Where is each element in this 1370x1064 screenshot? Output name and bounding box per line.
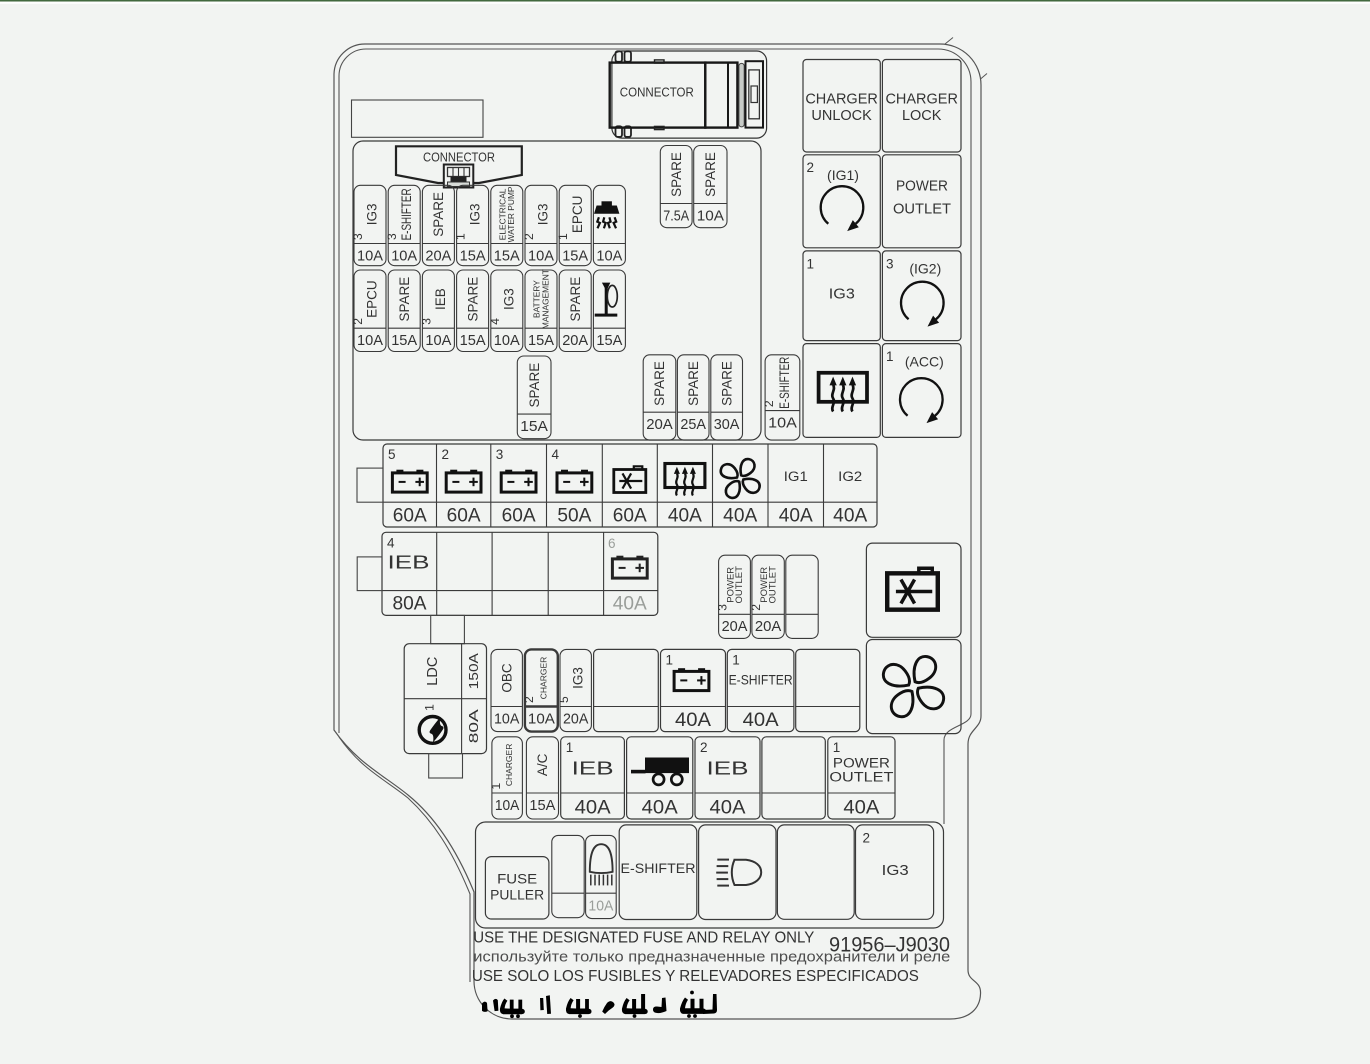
svg-text:UNLOCK: UNLOCK — [811, 108, 872, 124]
svg-text:10A: 10A — [528, 247, 554, 264]
svg-text:30A: 30A — [714, 416, 740, 433]
svg-text:E-SHIFTER: E-SHIFTER — [621, 860, 696, 876]
svg-text:40A: 40A — [710, 798, 746, 819]
svg-text:4: 4 — [387, 536, 395, 551]
svg-text:10A: 10A — [588, 898, 613, 915]
svg-text:10A: 10A — [357, 247, 383, 264]
svg-text:SPARE: SPARE — [652, 361, 667, 406]
svg-text:SPARE: SPARE — [669, 152, 684, 197]
svg-text:CHARGER: CHARGER — [885, 92, 958, 108]
svg-text:CHARGER: CHARGER — [538, 657, 548, 700]
svg-text:OBC: OBC — [499, 663, 514, 693]
svg-text:1: 1 — [556, 233, 570, 240]
svg-text:10A: 10A — [494, 710, 519, 727]
svg-text:40A: 40A — [668, 506, 702, 527]
svg-text:20A: 20A — [646, 416, 673, 433]
svg-text:POWER: POWER — [833, 756, 890, 771]
svg-text:3: 3 — [351, 233, 365, 240]
svg-text:20A: 20A — [755, 618, 781, 635]
svg-text:40A: 40A — [675, 710, 711, 731]
svg-text:6: 6 — [608, 536, 616, 551]
svg-text:10A: 10A — [697, 207, 724, 224]
svg-text:40A: 40A — [843, 798, 879, 819]
svg-text:IG3: IG3 — [365, 204, 380, 226]
svg-text:IG3: IG3 — [570, 667, 585, 689]
svg-text:1: 1 — [833, 740, 841, 755]
svg-text:15A: 15A — [391, 332, 417, 349]
svg-text:80A: 80A — [393, 594, 427, 615]
svg-text:SPARE: SPARE — [703, 152, 718, 197]
svg-text:используйте только предназначе: используйте только предназначенные предо… — [473, 949, 950, 966]
svg-text:2: 2 — [749, 604, 763, 611]
svg-text:15A: 15A — [460, 332, 486, 349]
svg-text:IEB: IEB — [707, 759, 749, 779]
svg-text:MANAGEMENT: MANAGEMENT — [540, 269, 550, 329]
svg-text:20A: 20A — [722, 618, 748, 635]
svg-text:2: 2 — [700, 740, 708, 755]
svg-text:FUSE: FUSE — [497, 872, 537, 887]
svg-text:3: 3 — [385, 233, 399, 240]
svg-text:2: 2 — [762, 400, 776, 407]
svg-text:IG3: IG3 — [829, 286, 855, 303]
svg-text:OUTLET: OUTLET — [829, 770, 893, 785]
svg-text:2: 2 — [522, 696, 536, 703]
svg-text:SPARE: SPARE — [686, 361, 701, 406]
svg-text:2: 2 — [522, 233, 536, 240]
svg-text:2: 2 — [351, 318, 365, 325]
svg-text:60A: 60A — [613, 506, 647, 527]
svg-text:10A: 10A — [495, 797, 520, 814]
svg-text:CHARGER: CHARGER — [504, 744, 514, 787]
svg-text:1: 1 — [886, 349, 894, 364]
svg-text:SPARE: SPARE — [568, 277, 583, 322]
svg-text:A/C: A/C — [535, 753, 550, 776]
svg-text:3: 3 — [886, 257, 894, 272]
svg-text:1: 1 — [423, 704, 437, 711]
svg-text:2: 2 — [442, 447, 450, 462]
svg-text:IG3: IG3 — [502, 288, 517, 310]
svg-text:SPARE: SPARE — [397, 277, 412, 322]
svg-text:SPARE: SPARE — [527, 363, 542, 408]
svg-text:10A: 10A — [596, 247, 622, 264]
svg-text:20A: 20A — [425, 247, 451, 264]
svg-text:WATER PUMP: WATER PUMP — [506, 186, 516, 242]
svg-text:15A: 15A — [528, 332, 554, 349]
svg-text:15A: 15A — [562, 247, 588, 264]
svg-text:IG3: IG3 — [882, 862, 909, 879]
svg-text:3: 3 — [496, 447, 504, 462]
svg-text:7.5A: 7.5A — [663, 207, 689, 224]
svg-text:50A: 50A — [557, 506, 591, 527]
svg-text:40A: 40A — [723, 506, 757, 527]
svg-text:60A: 60A — [393, 506, 427, 527]
svg-text:PULLER: PULLER — [490, 888, 544, 903]
svg-text:60A: 60A — [447, 506, 481, 527]
svg-text:1: 1 — [454, 233, 468, 240]
svg-text:15A: 15A — [529, 797, 555, 814]
svg-text:40A: 40A — [575, 798, 611, 819]
svg-text:SPARE: SPARE — [465, 277, 480, 322]
svg-text:15A: 15A — [520, 418, 548, 435]
svg-text:LDC: LDC — [425, 657, 441, 686]
svg-text:2: 2 — [863, 831, 871, 846]
svg-text:E-SHIFTER: E-SHIFTER — [777, 357, 792, 409]
svg-text:1: 1 — [489, 783, 503, 790]
svg-text:15A: 15A — [460, 247, 486, 264]
svg-text:15A: 15A — [596, 332, 622, 349]
svg-text:60A: 60A — [502, 506, 536, 527]
svg-text:3: 3 — [419, 318, 433, 325]
svg-text:20A: 20A — [562, 332, 588, 349]
svg-text:E-SHIFTER: E-SHIFTER — [729, 673, 793, 688]
svg-text:3: 3 — [716, 604, 730, 611]
svg-text:1: 1 — [807, 257, 815, 272]
svg-text:IEB: IEB — [388, 553, 430, 573]
svg-text:10A: 10A — [528, 710, 555, 727]
svg-text:10A: 10A — [494, 332, 520, 349]
svg-text:10A: 10A — [357, 332, 383, 349]
svg-text:2: 2 — [807, 160, 815, 175]
svg-text:CONNECTOR: CONNECTOR — [423, 150, 495, 164]
svg-text:USE SOLO LOS FUSIBLES Y RELEVA: USE SOLO LOS FUSIBLES Y RELEVADORES ESPE… — [472, 968, 919, 985]
svg-text:20A: 20A — [563, 710, 588, 727]
svg-text:EPCU: EPCU — [365, 280, 380, 318]
svg-text:25A: 25A — [680, 416, 706, 433]
svg-text:(IG2): (IG2) — [909, 261, 941, 277]
svg-text:IG2: IG2 — [838, 469, 862, 484]
svg-text:80A: 80A — [466, 709, 481, 743]
svg-text:(ACC): (ACC) — [905, 354, 944, 370]
svg-text:5: 5 — [388, 447, 396, 462]
svg-text:CHARGER: CHARGER — [805, 92, 878, 108]
svg-text:E-SHIFTER: E-SHIFTER — [399, 188, 414, 240]
svg-text:EPCU: EPCU — [570, 196, 585, 234]
svg-text:1: 1 — [732, 653, 740, 668]
svg-text:40A: 40A — [743, 710, 779, 731]
svg-text:OUTLET: OUTLET — [734, 566, 745, 604]
svg-text:1: 1 — [566, 740, 574, 755]
svg-text:40A: 40A — [833, 506, 867, 527]
svg-text:150A: 150A — [466, 653, 481, 689]
svg-text:10A: 10A — [768, 414, 797, 431]
svg-text:10A: 10A — [391, 247, 417, 264]
svg-text:4: 4 — [488, 318, 502, 325]
svg-text:40A: 40A — [779, 506, 813, 527]
svg-text:SPARE: SPARE — [719, 361, 734, 406]
svg-text:IG1: IG1 — [784, 469, 808, 484]
svg-text:40A: 40A — [613, 594, 647, 615]
svg-text:IG3: IG3 — [536, 204, 551, 226]
svg-text:SPARE: SPARE — [431, 192, 446, 237]
svg-text:(IG1): (IG1) — [827, 167, 859, 183]
svg-text:OUTLET: OUTLET — [893, 201, 951, 218]
svg-text:40A: 40A — [642, 798, 678, 819]
svg-text:5: 5 — [557, 696, 571, 703]
svg-text:IG3: IG3 — [467, 204, 482, 226]
svg-text:1: 1 — [666, 653, 674, 668]
svg-text:4: 4 — [552, 447, 560, 462]
svg-text:LOCK: LOCK — [902, 108, 942, 124]
svg-text:IEB: IEB — [433, 288, 448, 310]
svg-text:USE THE DESIGNATED FUSE AND RE: USE THE DESIGNATED FUSE AND RELAY ONLY — [473, 929, 814, 946]
svg-text:10A: 10A — [425, 332, 451, 349]
svg-text:POWER: POWER — [896, 178, 948, 195]
svg-text:15A: 15A — [494, 247, 520, 264]
svg-text:CONNECTOR: CONNECTOR — [620, 86, 694, 100]
svg-text:IEB: IEB — [572, 759, 614, 779]
svg-text:OUTLET: OUTLET — [768, 566, 779, 604]
